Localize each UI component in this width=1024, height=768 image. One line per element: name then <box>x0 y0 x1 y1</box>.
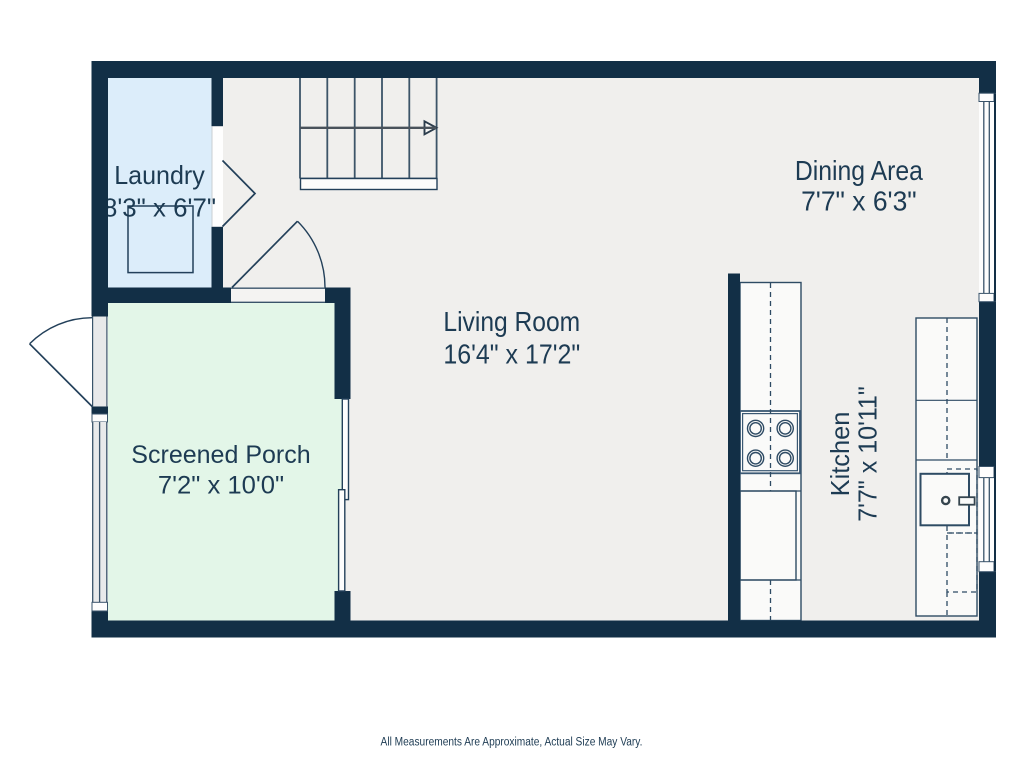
svg-text:Kitchen: Kitchen <box>825 412 855 497</box>
svg-text:8'3" x 6'7": 8'3" x 6'7" <box>103 193 216 223</box>
svg-text:All Measurements Are Approxima: All Measurements Are Approximate, Actual… <box>381 737 643 749</box>
svg-text:Laundry: Laundry <box>114 160 205 190</box>
svg-text:7'2" x 10'0": 7'2" x 10'0" <box>158 472 284 500</box>
svg-text:16'4" x 17'2": 16'4" x 17'2" <box>443 338 580 369</box>
svg-text:Dining Area: Dining Area <box>795 155 923 186</box>
svg-text:7'7" x 10'11": 7'7" x 10'11" <box>852 386 882 522</box>
svg-text:7'7" x 6'3": 7'7" x 6'3" <box>801 186 917 217</box>
svg-text:Screened Porch: Screened Porch <box>131 441 310 469</box>
svg-text:Living Room: Living Room <box>443 306 580 337</box>
